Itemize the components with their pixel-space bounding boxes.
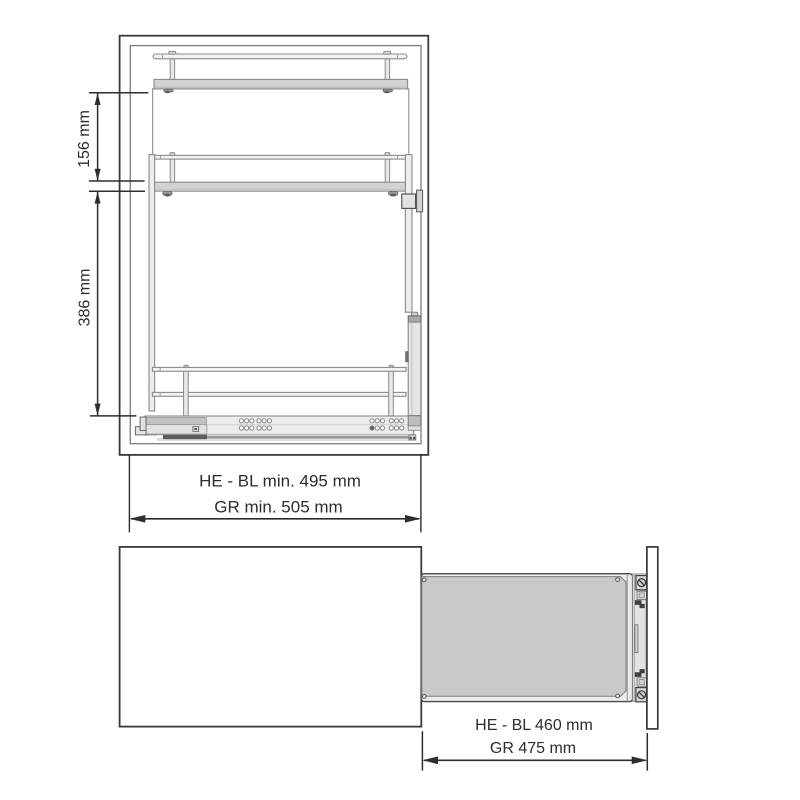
svg-text:156 mm: 156 mm bbox=[76, 110, 93, 168]
svg-text:HE - BL min. 495 mm: HE - BL min. 495 mm bbox=[199, 472, 361, 491]
svg-text:386 mm: 386 mm bbox=[77, 269, 94, 327]
svg-text:GR min. 505 mm: GR min. 505 mm bbox=[214, 498, 342, 517]
svg-text:HE - BL 460 mm: HE - BL 460 mm bbox=[475, 717, 593, 734]
svg-text:GR 475 mm: GR 475 mm bbox=[490, 740, 576, 757]
